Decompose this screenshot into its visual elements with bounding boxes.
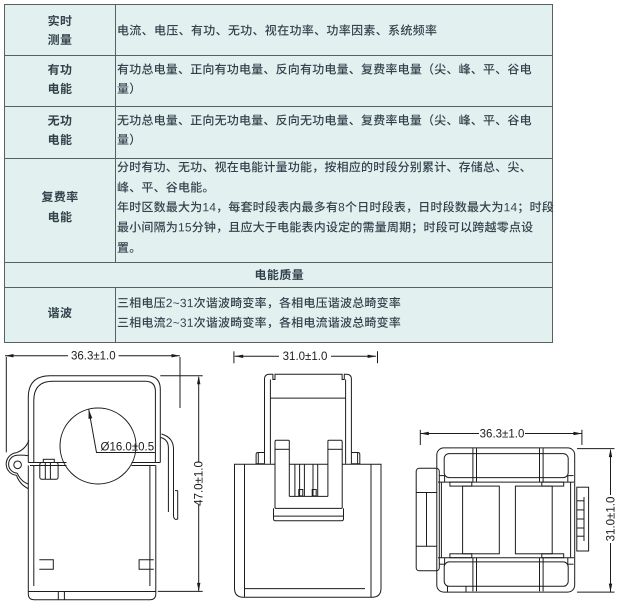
svg-text:47.0±1.0: 47.0±1.0 [193, 461, 205, 506]
svg-text:31.0±1.0: 31.0±1.0 [605, 497, 617, 542]
svg-text:31.0±1.0: 31.0±1.0 [283, 351, 328, 363]
svg-text:36.3±1.0: 36.3±1.0 [71, 351, 116, 363]
svg-text:Ø16.0±0.5: Ø16.0±0.5 [101, 442, 155, 454]
svg-text:36.3±1.0: 36.3±1.0 [480, 428, 525, 440]
